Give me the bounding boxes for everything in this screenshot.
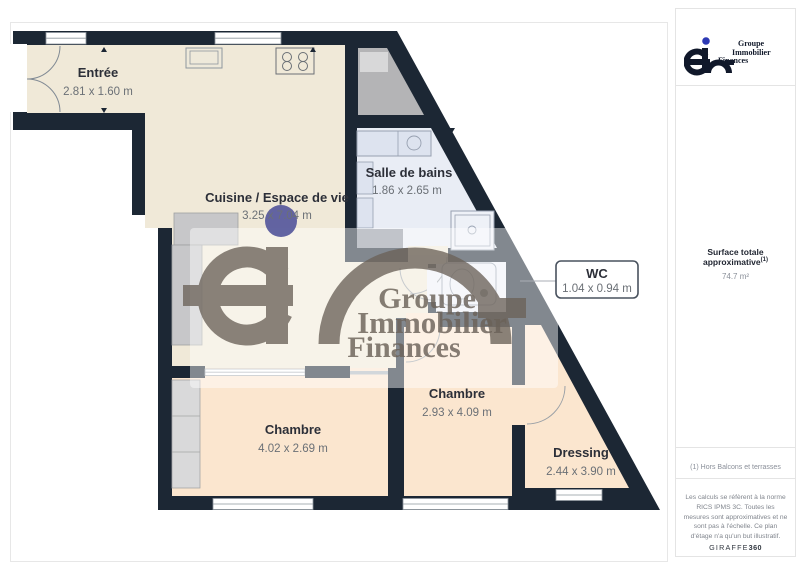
disclaimer-text: Les calculs se réfèrent à la norme RICS … [683, 493, 788, 542]
floorplan-page: Groupe Immobilier Finances Entrée 2.81 x… [0, 0, 800, 566]
room-label-chambre-left: Chambre [265, 422, 321, 437]
company-name-line-3: Finances [718, 57, 771, 66]
watermark-line-3: Finances [347, 331, 460, 364]
logo-dot [702, 37, 710, 45]
wardrobe-icon [172, 380, 200, 488]
room-dims-cuisine: 3.25 x 7.04 m [242, 210, 312, 222]
room-label-cuisine: Cuisine / Espace de vie [205, 190, 349, 205]
surface-total-value: 74.7 m² [676, 272, 795, 281]
surface-total-label: Surface totale approximative(1) [676, 247, 795, 267]
sidebar-divider-3 [676, 478, 795, 479]
watermark: Groupe Immobilier Finances [183, 205, 558, 388]
room-dims-dressing: 2.44 x 3.90 m [546, 466, 616, 478]
room-label-dressing: Dressing [553, 445, 609, 460]
stove-icon [276, 48, 314, 74]
room-dims-salle-de-bains: 1.86 x 2.65 m [372, 185, 442, 197]
sidebar-divider-1 [676, 85, 795, 86]
room-label-salle-de-bains: Salle de bains [366, 165, 453, 180]
surface-footnote-ref: (1) [761, 257, 768, 263]
room-label-entree: Entrée [78, 65, 118, 80]
room-dims-entree: 2.81 x 1.60 m [63, 86, 133, 98]
room-dims-chambre-right: 2.93 x 4.09 m [422, 407, 492, 419]
room-dims-wc: 1.04 x 0.94 m [562, 283, 632, 295]
provider-suffix: 360 [749, 543, 762, 552]
dressing-door-opening [508, 385, 528, 425]
company-name: Groupe Immobilier Finances [732, 40, 771, 66]
room-label-chambre-right: Chambre [429, 386, 485, 401]
surface-footnote: (1) Hors Balcons et terrasses [676, 464, 795, 471]
provider-credit: GIRAFFE360 [676, 543, 795, 552]
sidebar: Groupe Immobilier Finances Surface total… [675, 8, 796, 557]
sidebar-divider-2 [676, 447, 795, 448]
room-label-wc: WC [586, 266, 608, 281]
entrance-opening [9, 44, 27, 112]
provider-name: GIRAFFE [709, 543, 749, 552]
surface-total-block: Surface totale approximative(1) 74.7 m² [676, 247, 795, 281]
bath-counter-icon [357, 131, 431, 156]
bath-unit-2 [357, 198, 373, 228]
floor-closet-inner [360, 52, 388, 72]
room-dims-chambre-left: 4.02 x 2.69 m [258, 443, 328, 455]
